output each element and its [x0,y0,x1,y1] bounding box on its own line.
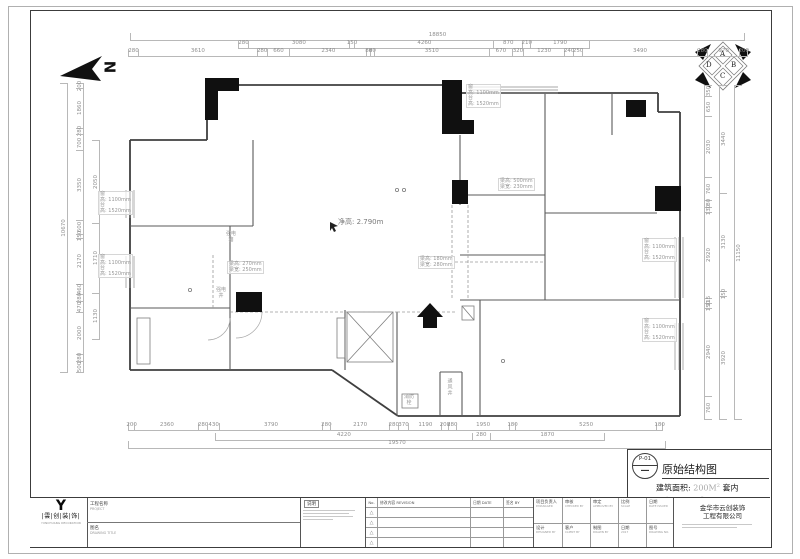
fixtures [137,188,505,408]
window-note-top: 窗高: 1100mm 台高: 1520mm [466,84,501,108]
grid-cell: 审核CHECKED BY [562,498,590,523]
north-arrow-icon [60,56,102,81]
outer-walls [130,85,680,416]
grid-cell: 日期DATE ISSUED [646,498,674,523]
revision-row: △ [366,508,534,518]
drawing-title: 原始结构图 [662,461,769,479]
elevator-cross [347,312,393,362]
drawing-number-bubble: P-01 — [632,453,658,479]
company-name-line2: 工程有限公司 [674,512,771,520]
bubble-dash: — [641,466,650,477]
company-logo: Y |雲|创|装|饰| YUNCHUANG DECORATION [36,500,86,525]
project-name-label: 工程名称 PROJECT [90,502,108,512]
grid-cell: 项目负责人P.MANAGER [534,498,562,523]
logo-mark-icon: Y [36,500,86,513]
revision-triangle-icon: △ [366,508,378,517]
revision-header-row: No. 修改内容 REVISION 日期 DATE 签名 BY [366,498,534,508]
clear-height-label: 净高: 2.790m [338,220,383,226]
window-note-right-1: 窗高: 1100mm 台高: 1520mm [642,238,677,262]
logo-text: |雲|创|装|饰| [36,513,86,521]
power-shaft-label: 强电井 [216,288,226,299]
bath-fixture [137,318,150,364]
notes-cell: 说明 [300,498,366,547]
area-line-1: 建筑面积: 200M2 套内 [656,481,771,494]
drawing-title-label: 图名 DRAWING TITLE [90,526,118,536]
company-cell: 金华市云创装饰 工程有限公司 [673,498,771,547]
notes-title: 说明 [304,500,319,508]
revision-table: No. 修改内容 REVISION 日期 DATE 签名 BY △ △ △ △ [365,498,534,547]
revision-triangle-icon: △ [366,518,378,527]
beam-note-entry: 梁高: 180mm梁宽: 280mm [418,256,455,269]
drawing-number: P-01 [633,454,657,466]
compass-letter-c: C [720,72,725,80]
beam-note-right: 梁高: 500mm梁宽: 230mm [498,178,535,191]
compass-letter-a: A [720,50,725,58]
grid-cell: 客户CLIENT BY [562,523,590,548]
logo-subtext: YUNCHUANG DECORATION [39,521,84,525]
door-arcs [208,312,262,340]
revision-triangle-icon: △ [366,528,378,537]
cursor-icon [330,222,338,232]
revision-row: △ [366,538,534,547]
grid-cell: 比例SCALE [618,498,646,523]
signature-grid: 项目负责人P.MANAGER 审核CHECKED BY 审定APPROVED B… [533,498,674,547]
north-letter: N [100,61,118,74]
entry-arrow-icon [417,303,443,328]
window-symbols [126,87,683,370]
compass-letter-d: D [706,61,712,69]
vent-shaft-label: 通风井 [446,378,452,396]
compass-letter-b: B [731,61,736,69]
window-note-right-2: 窗高: 1100mm 台高: 1520mm [642,318,677,342]
interior-walls [130,93,680,416]
structural-columns [205,78,681,312]
beam-note-center: 梁高: 270mm梁宽: 250mm [227,261,264,274]
title-block: Y |雲|创|装|饰| YUNCHUANG DECORATION 工程名称 PR… [30,497,770,547]
grid-cell: 日期2017 [618,523,646,548]
revision-triangle-icon: △ [366,538,378,547]
window-note-left-1: 窗高: 1100mm 台高: 1520mm [98,191,133,215]
drawing-title-box: P-01 — 原始结构图 建筑面积: 200M2 套内 面积: 175M2 [627,449,771,498]
company-name-line1: 金华市云创装饰 [674,504,771,512]
hydrant-label: 消防栓 [404,395,414,406]
grid-cell: 审定APPROVED BY [590,498,618,523]
power-box-label: 强电箱 [226,232,236,243]
divider [87,522,300,523]
revision-row: △ [366,518,534,528]
grid-cell: 设计DESIGNED BY [534,523,562,548]
window-note-left-2: 窗高: 1100mm 台高: 1520mm [98,254,133,278]
revision-row: △ [366,528,534,538]
grid-cell: 图号DRAWING NO. [646,523,674,548]
grid-cell: 制图DRAWN BY [590,523,618,548]
drawing-sheet: { "sheet_title": "原始结构图", "pbox": { "no"… [0,0,800,559]
